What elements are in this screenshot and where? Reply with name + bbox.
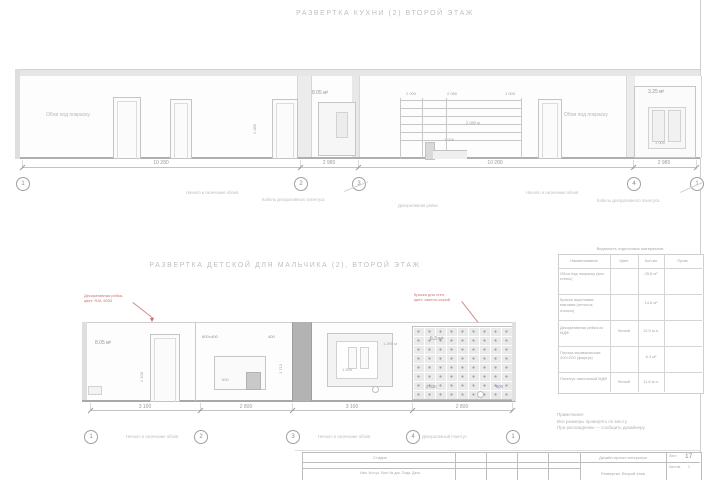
tile-dim-blue: 2 030 (426, 384, 436, 389)
leader-note: Кабель декоративного плинтуса (262, 197, 325, 202)
table-cell-qty: 14.6 м² (639, 300, 663, 305)
leader-note: Начало и окончание обоев (318, 434, 370, 439)
axis-callout: 2 (194, 430, 208, 444)
marker-circle (477, 391, 484, 398)
dim-value: 10 280 (131, 160, 191, 166)
cabinet-dim: 1 000 (655, 140, 665, 145)
axis-callout: 3 (286, 430, 300, 444)
table-cell-qty: 25.8 м² (639, 271, 663, 276)
stamp-row-line (302, 462, 700, 463)
wall-return-right (512, 322, 516, 401)
table-header: Кол-во (639, 258, 663, 263)
table-cell-color: белый (611, 328, 637, 333)
area-label: 8.05 м² (312, 90, 328, 96)
note-line: Примечание: (557, 412, 584, 417)
niche-panel (348, 347, 357, 369)
stair-dim: 2 080 (447, 91, 457, 96)
axis-callout: 1 (16, 177, 30, 191)
stamp-sheet-number: 17 (685, 453, 692, 460)
drawing-sheet: РАЗВЕРТКА КУХНИ (2) ВТОРОЙ ЭТАЖ Обои под… (0, 0, 720, 480)
area-label: 3.25 м² (648, 89, 664, 95)
stamp-col-line (548, 452, 549, 480)
axis-callout: 1 (84, 430, 98, 444)
table-cell-color: белый (611, 379, 637, 384)
red-annotation: Декоративная рейка, цвет: RAL 9003 (84, 293, 123, 303)
stamp-drawing-name: Развертки. Второй этаж (582, 471, 664, 476)
side-dim: 1 713 (278, 364, 283, 374)
stair-dim: 2 080 м (466, 120, 480, 125)
fixture-dim: 600×400 (202, 334, 218, 339)
stamp-stage-label: Стадия (310, 455, 450, 460)
baseboard-detail (88, 386, 102, 395)
railing-post (422, 98, 423, 158)
wall-pier (297, 76, 312, 157)
desk-dim: 600 (222, 377, 229, 382)
fixture-dim: 400 (268, 334, 275, 339)
table-title: Ведомость отделочных материалов (558, 246, 702, 251)
leader-note: Начало и окончание обоев (526, 190, 578, 195)
finish-label: Обои под покраску (46, 112, 90, 118)
table-cell-name: Декоративная рейка из МДФ (560, 325, 608, 336)
railing-post (446, 98, 447, 158)
table-cell-qty: 12.5 м.п. (639, 328, 663, 333)
table-cell-name: Плинтус напольный МДФ (560, 376, 608, 381)
leader-note: Начало и окончание обоев (186, 190, 238, 195)
door-elevation (272, 99, 298, 159)
dim-value: 10 280 (465, 160, 525, 166)
stamp-col-line (455, 452, 456, 480)
cabinet-panel (652, 110, 665, 142)
red-leader-line (132, 302, 153, 319)
dim-value: 3 100 (324, 404, 380, 410)
niche-dim: 1 555 (342, 367, 352, 372)
railing-post (400, 98, 401, 158)
stamp-sheets-label: Листов (669, 465, 680, 469)
table-cell-name: Краска акриловая матовая (потолок, откос… (560, 297, 608, 313)
table-header: Наименование (560, 258, 608, 263)
door-elevation (170, 99, 192, 159)
railing-post (521, 98, 522, 158)
table-row-line (558, 346, 702, 347)
radiator (336, 112, 348, 138)
note-line: Все размеры проверять по месту. (557, 419, 628, 424)
stair-dim: 1 000 (505, 91, 515, 96)
table-row-line (558, 294, 702, 295)
table-cell-qty: 6.3 м² (639, 354, 663, 359)
stamp-project: Дизайн-проект интерьера (582, 455, 664, 460)
stair-railing (400, 100, 522, 141)
stamp-col-line (517, 452, 518, 480)
area-label: 8.05 м² (95, 340, 111, 346)
niche-panel (360, 347, 369, 369)
table-row-line (558, 268, 702, 269)
wall-section-cut (292, 322, 312, 401)
door-elevation (538, 99, 562, 159)
axis-callout: 4 (627, 177, 641, 191)
table-row-line (558, 372, 702, 373)
note-line: При расхождении — сообщить дизайнеру. (557, 425, 646, 430)
area-label: 6.3 м² (430, 336, 443, 342)
stair-step (433, 150, 467, 159)
door-elevation (113, 97, 141, 159)
leader-note: Декоративная рейка (398, 203, 438, 208)
finish-label: Обои под покраску (564, 112, 608, 118)
bottom-drawing-title: РАЗВЕРТКА ДЕТСКОЙ ДЛЯ МАЛЬЧИКА (2), ВТОР… (135, 262, 435, 269)
dim-tick (510, 408, 516, 414)
table-cell-qty: 11.8 м.п. (639, 379, 663, 384)
dim-value: 2 800 (218, 404, 274, 410)
red-annotation: Краска для стен, цвет: светло-серый (414, 292, 450, 302)
axis-callout: 4 (406, 430, 420, 444)
tile-dim-blue: 800 (496, 384, 503, 389)
red-annotation-line: цвет: RAL 9003 (84, 298, 112, 303)
dim-tick (694, 165, 700, 171)
cabinet-panel (668, 110, 681, 142)
door-height-dim: 2 100 (139, 372, 144, 382)
niche-label: 1 295 м (383, 341, 397, 346)
sheet-frame-right (700, 0, 701, 480)
stair-dim: 2 000 (406, 91, 416, 96)
leader-note: Декоративный плинтус (422, 434, 467, 439)
marker-circle (372, 386, 379, 393)
top-drawing-title: РАЗВЕРТКА КУХНИ (2) ВТОРОЙ ЭТАЖ (240, 10, 530, 17)
stamp-sheets-number: 1 (688, 465, 690, 469)
axis-callout: 1 (506, 430, 520, 444)
table-cell-name: Обои под покраску (все стены) (560, 271, 608, 282)
stamp-row-line (302, 468, 580, 469)
table-header: Прим. (665, 258, 701, 263)
stair-dim: 1 000 (444, 137, 454, 142)
niche-inner (336, 341, 378, 379)
stamp-col-line (666, 452, 667, 480)
stamp-outer-line (295, 450, 700, 451)
stamp-sheet-label: Лист (669, 454, 677, 458)
axis-callout: 2 (294, 177, 308, 191)
door-elevation (150, 334, 180, 402)
stamp-col-line (486, 452, 487, 480)
door-height-dim: 2 080 (252, 124, 257, 134)
dimension-line (90, 410, 512, 411)
stamp-row2-label: Изм. Кол.уч. Лист № док. Подп. Дата (310, 471, 470, 475)
stamp-col-line (580, 452, 581, 480)
red-annotation-line: цвет: светло-серый (414, 297, 450, 302)
dim-value: 2 985 (636, 160, 692, 166)
leader-note: Начало и окончание обоев (126, 434, 178, 439)
dim-value: 2 800 (434, 404, 490, 410)
desk-drawer (246, 372, 261, 390)
dim-value: 3 100 (117, 404, 173, 410)
wall-return-left (15, 69, 20, 159)
dim-value: 2 985 (301, 160, 357, 166)
segment-divider (195, 322, 196, 401)
leader-note: Кабель декоративного плинтуса (597, 198, 660, 203)
table-row-line (558, 320, 702, 321)
table-header: Цвет (611, 258, 637, 263)
table-cell-name: Плитка керамическая 200×200 (фартук) (560, 350, 608, 361)
